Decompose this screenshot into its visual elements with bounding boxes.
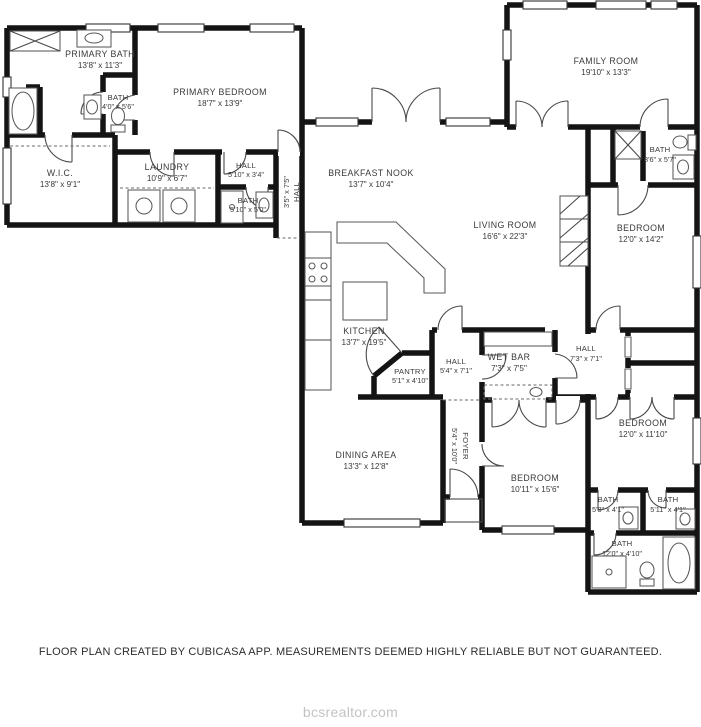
room-label-bedroom-3: BEDROOM12'0" x 11'10" <box>619 418 668 439</box>
room-label-living-room: LIVING ROOM16'6" x 22'3" <box>473 220 536 241</box>
svg-text:HALL: HALL <box>446 357 467 366</box>
svg-text:HALL: HALL <box>576 344 597 353</box>
room-label-hall-1: HALL5'10" x 3'4" <box>228 161 264 179</box>
svg-text:BATH: BATH <box>598 495 619 504</box>
svg-text:5'4" x 10'0": 5'4" x 10'0" <box>450 428 459 464</box>
svg-text:7'3" x 7'1": 7'3" x 7'1" <box>570 354 602 363</box>
svg-text:12'0" x 14'2": 12'0" x 14'2" <box>619 235 664 244</box>
room-label-bath-5: BATH5'8" x 4'1" <box>592 495 624 514</box>
svg-text:BEDROOM: BEDROOM <box>511 473 559 483</box>
toilet-icon <box>673 135 696 150</box>
vanity-sink-icon <box>77 30 111 47</box>
svg-text:13'7" x 10'4": 13'7" x 10'4" <box>349 180 394 189</box>
svg-text:5'11" x 4'1": 5'11" x 4'1" <box>650 505 686 514</box>
room-label-wic: W.I.C.13'8" x 9'1" <box>40 168 80 189</box>
room-label-hall-4: HALL7'3" x 7'1" <box>570 344 602 363</box>
room-label-bath-4: BATH8'6" x 5'7" <box>644 145 676 164</box>
svg-text:5'10" x 5'0": 5'10" x 5'0" <box>230 205 266 214</box>
svg-text:13'8" x 11'3": 13'8" x 11'3" <box>78 61 122 70</box>
svg-text:PRIMARY BEDROOM: PRIMARY BEDROOM <box>173 87 267 97</box>
disclaimer-text: FLOOR PLAN CREATED BY CUBICASA APP. MEAS… <box>0 646 701 658</box>
svg-text:16'6" x 22'3": 16'6" x 22'3" <box>483 232 528 241</box>
kitchen-counter <box>305 232 331 390</box>
svg-text:13'8" x 9'1": 13'8" x 9'1" <box>40 180 80 189</box>
svg-text:5'4" x 7'1": 5'4" x 7'1" <box>440 366 472 375</box>
svg-text:BATH: BATH <box>658 495 679 504</box>
svg-text:DINING AREA: DINING AREA <box>335 450 396 460</box>
room-label-wet-bar: WET BAR7'3" x 7'5" <box>488 352 531 373</box>
room-label-laundry: LAUNDRY10'9" x 6'7" <box>145 162 190 183</box>
svg-text:10'11" x 15'6": 10'11" x 15'6" <box>511 485 560 494</box>
washer-dryer-icon <box>128 190 195 222</box>
svg-text:13'3" x 12'8": 13'3" x 12'8" <box>344 462 389 471</box>
svg-text:BEDROOM: BEDROOM <box>617 223 665 233</box>
watermark-text: bcsrealtor.com <box>0 704 701 720</box>
room-label-bath-6: BATH5'11" x 4'1" <box>650 495 686 514</box>
svg-text:12'0" x 11'10": 12'0" x 11'10" <box>619 430 668 439</box>
svg-text:3'5" x 7'5": 3'5" x 7'5" <box>282 176 291 208</box>
svg-text:8'6" x 5'7": 8'6" x 5'7" <box>644 155 676 164</box>
svg-text:BATH: BATH <box>108 93 129 102</box>
svg-text:FOYER: FOYER <box>461 432 470 460</box>
entry-porch <box>445 499 482 522</box>
svg-text:7'3" x 7'5": 7'3" x 7'5" <box>491 364 527 373</box>
svg-text:PRIMARY BATH: PRIMARY BATH <box>65 49 135 59</box>
toilet-icon <box>640 562 654 586</box>
svg-text:12'0" x 4'10": 12'0" x 4'10" <box>602 549 642 558</box>
svg-text:KITCHEN: KITCHEN <box>343 326 384 336</box>
room-label-dining-area: DINING AREA13'3" x 12'8" <box>335 450 396 471</box>
room-label-hall-2: HALL3'5" x 7'5" <box>282 176 301 208</box>
floor-plan-page: PRIMARY BATH13'8" x 11'3" BATH4'0" x 5'6… <box>0 0 701 727</box>
svg-text:BEDROOM: BEDROOM <box>619 418 667 428</box>
svg-text:LAUNDRY: LAUNDRY <box>145 162 190 172</box>
svg-text:PANTRY: PANTRY <box>394 367 426 376</box>
vanity-sink-icon <box>673 155 694 179</box>
kitchen-island <box>343 282 387 320</box>
svg-text:FAMILY ROOM: FAMILY ROOM <box>574 56 639 66</box>
svg-text:5'8" x 4'1": 5'8" x 4'1" <box>592 505 624 514</box>
vanity-sink-icon <box>84 95 101 119</box>
svg-text:19'10" x 13'3": 19'10" x 13'3" <box>581 68 631 77</box>
svg-text:18'7" x 13'9": 18'7" x 13'9" <box>198 99 243 108</box>
room-label-bath-7: BATH12'0" x 4'10" <box>602 539 642 558</box>
room-label-primary-bedroom: PRIMARY BEDROOM18'7" x 13'9" <box>173 87 267 108</box>
svg-text:WET BAR: WET BAR <box>488 352 531 362</box>
room-label-bedroom-1: BEDROOM12'0" x 14'2" <box>617 223 665 244</box>
bathtub-icon <box>663 537 695 589</box>
svg-text:13'7" x 19'5": 13'7" x 19'5" <box>342 338 387 347</box>
svg-text:BATH: BATH <box>612 539 633 548</box>
room-label-bedroom-2: BEDROOM10'11" x 15'6" <box>511 473 560 494</box>
svg-text:BATH: BATH <box>650 145 671 154</box>
svg-text:LIVING ROOM: LIVING ROOM <box>473 220 536 230</box>
shower-icon <box>592 556 626 588</box>
svg-text:HALL: HALL <box>236 161 257 170</box>
door-arcs <box>45 88 674 555</box>
svg-text:5'10" x 3'4": 5'10" x 3'4" <box>228 170 264 179</box>
svg-text:HALL: HALL <box>292 181 301 202</box>
room-label-hall-3: HALL5'4" x 7'1" <box>440 357 472 375</box>
floor-plan-drawing: PRIMARY BATH13'8" x 11'3" BATH4'0" x 5'6… <box>0 0 701 727</box>
toilet-icon <box>111 108 125 133</box>
svg-text:10'9" x 6'7": 10'9" x 6'7" <box>147 174 187 183</box>
svg-text:BATH: BATH <box>238 196 259 205</box>
room-label-kitchen: KITCHEN13'7" x 19'5" <box>342 326 387 347</box>
svg-text:4'0" x 5'6": 4'0" x 5'6" <box>102 102 134 111</box>
fireplace-icon <box>560 196 588 266</box>
svg-text:5'1" x 4'10": 5'1" x 4'10" <box>392 376 428 385</box>
svg-text:W.I.C.: W.I.C. <box>47 168 73 178</box>
room-label-breakfast-nook: BREAKFAST NOOK13'7" x 10'4" <box>328 168 414 189</box>
svg-text:BREAKFAST NOOK: BREAKFAST NOOK <box>328 168 414 178</box>
room-label-family-room: FAMILY ROOM19'10" x 13'3" <box>574 56 639 77</box>
room-label-primary-bath: PRIMARY BATH13'8" x 11'3" <box>65 49 135 70</box>
closet-wardrobe-icon <box>10 31 60 51</box>
bathtub-icon <box>9 88 37 134</box>
closet-wardrobe-icon <box>615 131 641 159</box>
room-label-pantry: PANTRY5'1" x 4'10" <box>392 367 428 385</box>
room-label-foyer: FOYER5'4" x 10'0" <box>450 428 470 464</box>
